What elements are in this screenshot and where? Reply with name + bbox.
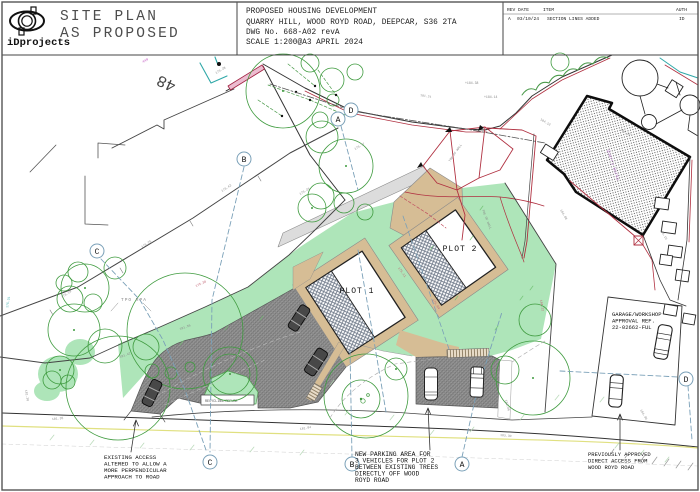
- svg-text:TPO RPA: TPO RPA: [121, 297, 147, 303]
- svg-text:+184.14: +184.14: [484, 95, 497, 99]
- svg-text:183.88: 183.88: [419, 390, 423, 402]
- svg-text:APPROACH TO ROAD: APPROACH TO ROAD: [104, 474, 160, 481]
- svg-text:SITE PLAN: SITE PLAN: [60, 9, 158, 25]
- svg-text:A: A: [508, 16, 511, 22]
- svg-text:WOOD ROYD ROAD: WOOD ROYD ROAD: [588, 464, 635, 471]
- svg-text:SECTION LINES ADDED: SECTION LINES ADDED: [547, 16, 600, 22]
- svg-text:B: B: [242, 156, 247, 165]
- svg-text:03/10/24: 03/10/24: [517, 16, 539, 22]
- svg-text:22-02662-FUL: 22-02662-FUL: [612, 324, 652, 331]
- svg-text:DWG No. 668-A02 revA: DWG No. 668-A02 revA: [246, 29, 340, 37]
- svg-text:D: D: [684, 376, 689, 385]
- svg-text:B: B: [350, 461, 355, 470]
- svg-text:SCALE 1:200@A3 APRIL 2024: SCALE 1:200@A3 APRIL 2024: [246, 39, 363, 47]
- svg-text:ID: ID: [679, 16, 685, 22]
- svg-text:REV DATE: REV DATE: [507, 7, 529, 13]
- svg-text:A: A: [460, 461, 465, 470]
- svg-text:AUTH: AUTH: [676, 7, 687, 13]
- svg-text:A: A: [336, 116, 341, 125]
- svg-text:D: D: [349, 107, 354, 116]
- svg-text:+184.38: +184.38: [465, 81, 478, 85]
- svg-text:C: C: [95, 248, 100, 257]
- svg-text:PLOT 2: PLOT 2: [443, 245, 478, 254]
- svg-text:ITEM: ITEM: [543, 7, 554, 13]
- svg-text:C: C: [208, 459, 213, 468]
- svg-text:PLOT 1: PLOT 1: [340, 287, 375, 296]
- svg-text:QUARRY HILL, WOOD ROYD ROAD, D: QUARRY HILL, WOOD ROYD ROAD, DEEPCAR, S3…: [246, 19, 457, 27]
- svg-text:AS PROPOSED: AS PROPOSED: [60, 26, 180, 42]
- svg-text:PROPOSED HOUSING DEVELOPMENT: PROPOSED HOUSING DEVELOPMENT: [246, 8, 377, 16]
- svg-text:ROYD ROAD: ROYD ROAD: [355, 477, 389, 484]
